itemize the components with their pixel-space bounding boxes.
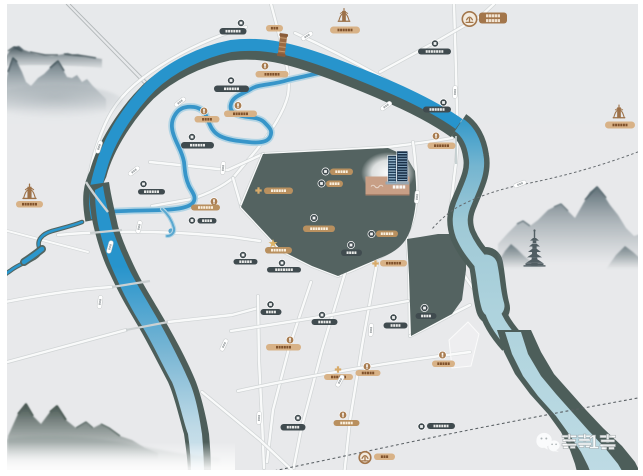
svg-text:1: 1	[589, 433, 600, 454]
